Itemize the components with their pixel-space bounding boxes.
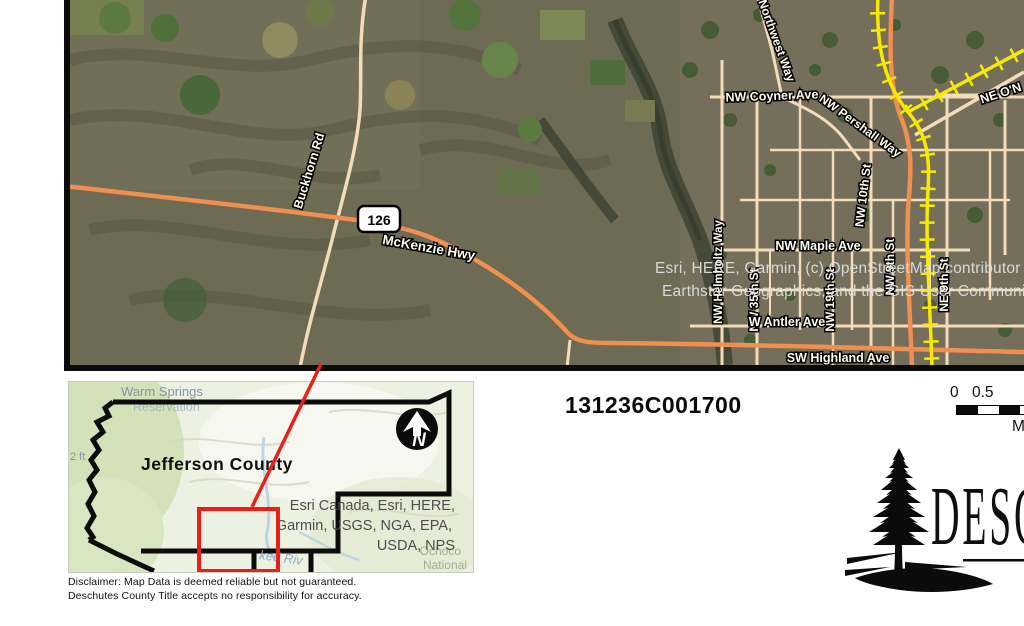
inset-attribution-line-2: Garmin, USGS, NGA, EPA, — [276, 518, 452, 534]
inset-map-svg: Warm Springs Reservation 2 ft Jefferson … — [69, 382, 473, 572]
disclaimer: Disclaimer: Map Data is deemed reliable … — [68, 576, 362, 603]
scale-bar-segments — [956, 405, 1024, 415]
logo-text: DESC — [931, 471, 1024, 563]
inset-label-elevation: 2 ft — [70, 451, 85, 463]
scale-tick-0: 0 — [950, 384, 959, 402]
main-map-svg: 126 Buckhorn Rd McKenzie Hwy Northwest W… — [70, 0, 1024, 365]
attribution-line-1: Esri, HERE, Garmin, (c) OpenStreetMap co… — [655, 260, 1021, 277]
logo-underline — [963, 559, 1024, 562]
company-logo: DESC — [845, 440, 1024, 625]
scale-tick-05: 0.5 — [972, 384, 994, 402]
scale-bar: 0 0.5 M — [946, 384, 1024, 402]
inset-label-warm-springs: Warm Springs — [121, 384, 203, 399]
main-map: 126 Buckhorn Rd McKenzie Hwy Northwest W… — [64, 0, 1024, 371]
attribution-line-2: Earthstar Geographics, and the GIS User … — [662, 283, 1024, 300]
highway-126-shield: 126 — [358, 206, 400, 232]
inset-locator-map: Warm Springs Reservation 2 ft Jefferson … — [68, 381, 474, 573]
road-label-antler: W Antler Ave — [749, 315, 825, 329]
inset-attribution-line-3: USDA, NPS — [377, 538, 455, 554]
logo-svg: DESC — [845, 440, 1024, 625]
road-label-highland: SW Highland Ave — [787, 351, 890, 365]
inset-label-ochoco-national: National — [423, 558, 467, 572]
disclaimer-line-1: Disclaimer: Map Data is deemed reliable … — [68, 576, 362, 590]
parcel-id: 131236C001700 — [565, 392, 742, 419]
inset-county-label: Jefferson County — [141, 454, 293, 474]
inset-attribution-line-1: Esri Canada, Esri, HERE, — [290, 498, 455, 514]
disclaimer-line-2: Deschutes County Title accepts no respon… — [68, 590, 362, 604]
scale-unit-label: M — [1012, 418, 1024, 436]
north-arrow-letter: N — [412, 430, 427, 451]
highway-shield-number: 126 — [367, 212, 391, 228]
road-label-maple: NW Maple Ave — [775, 239, 860, 253]
